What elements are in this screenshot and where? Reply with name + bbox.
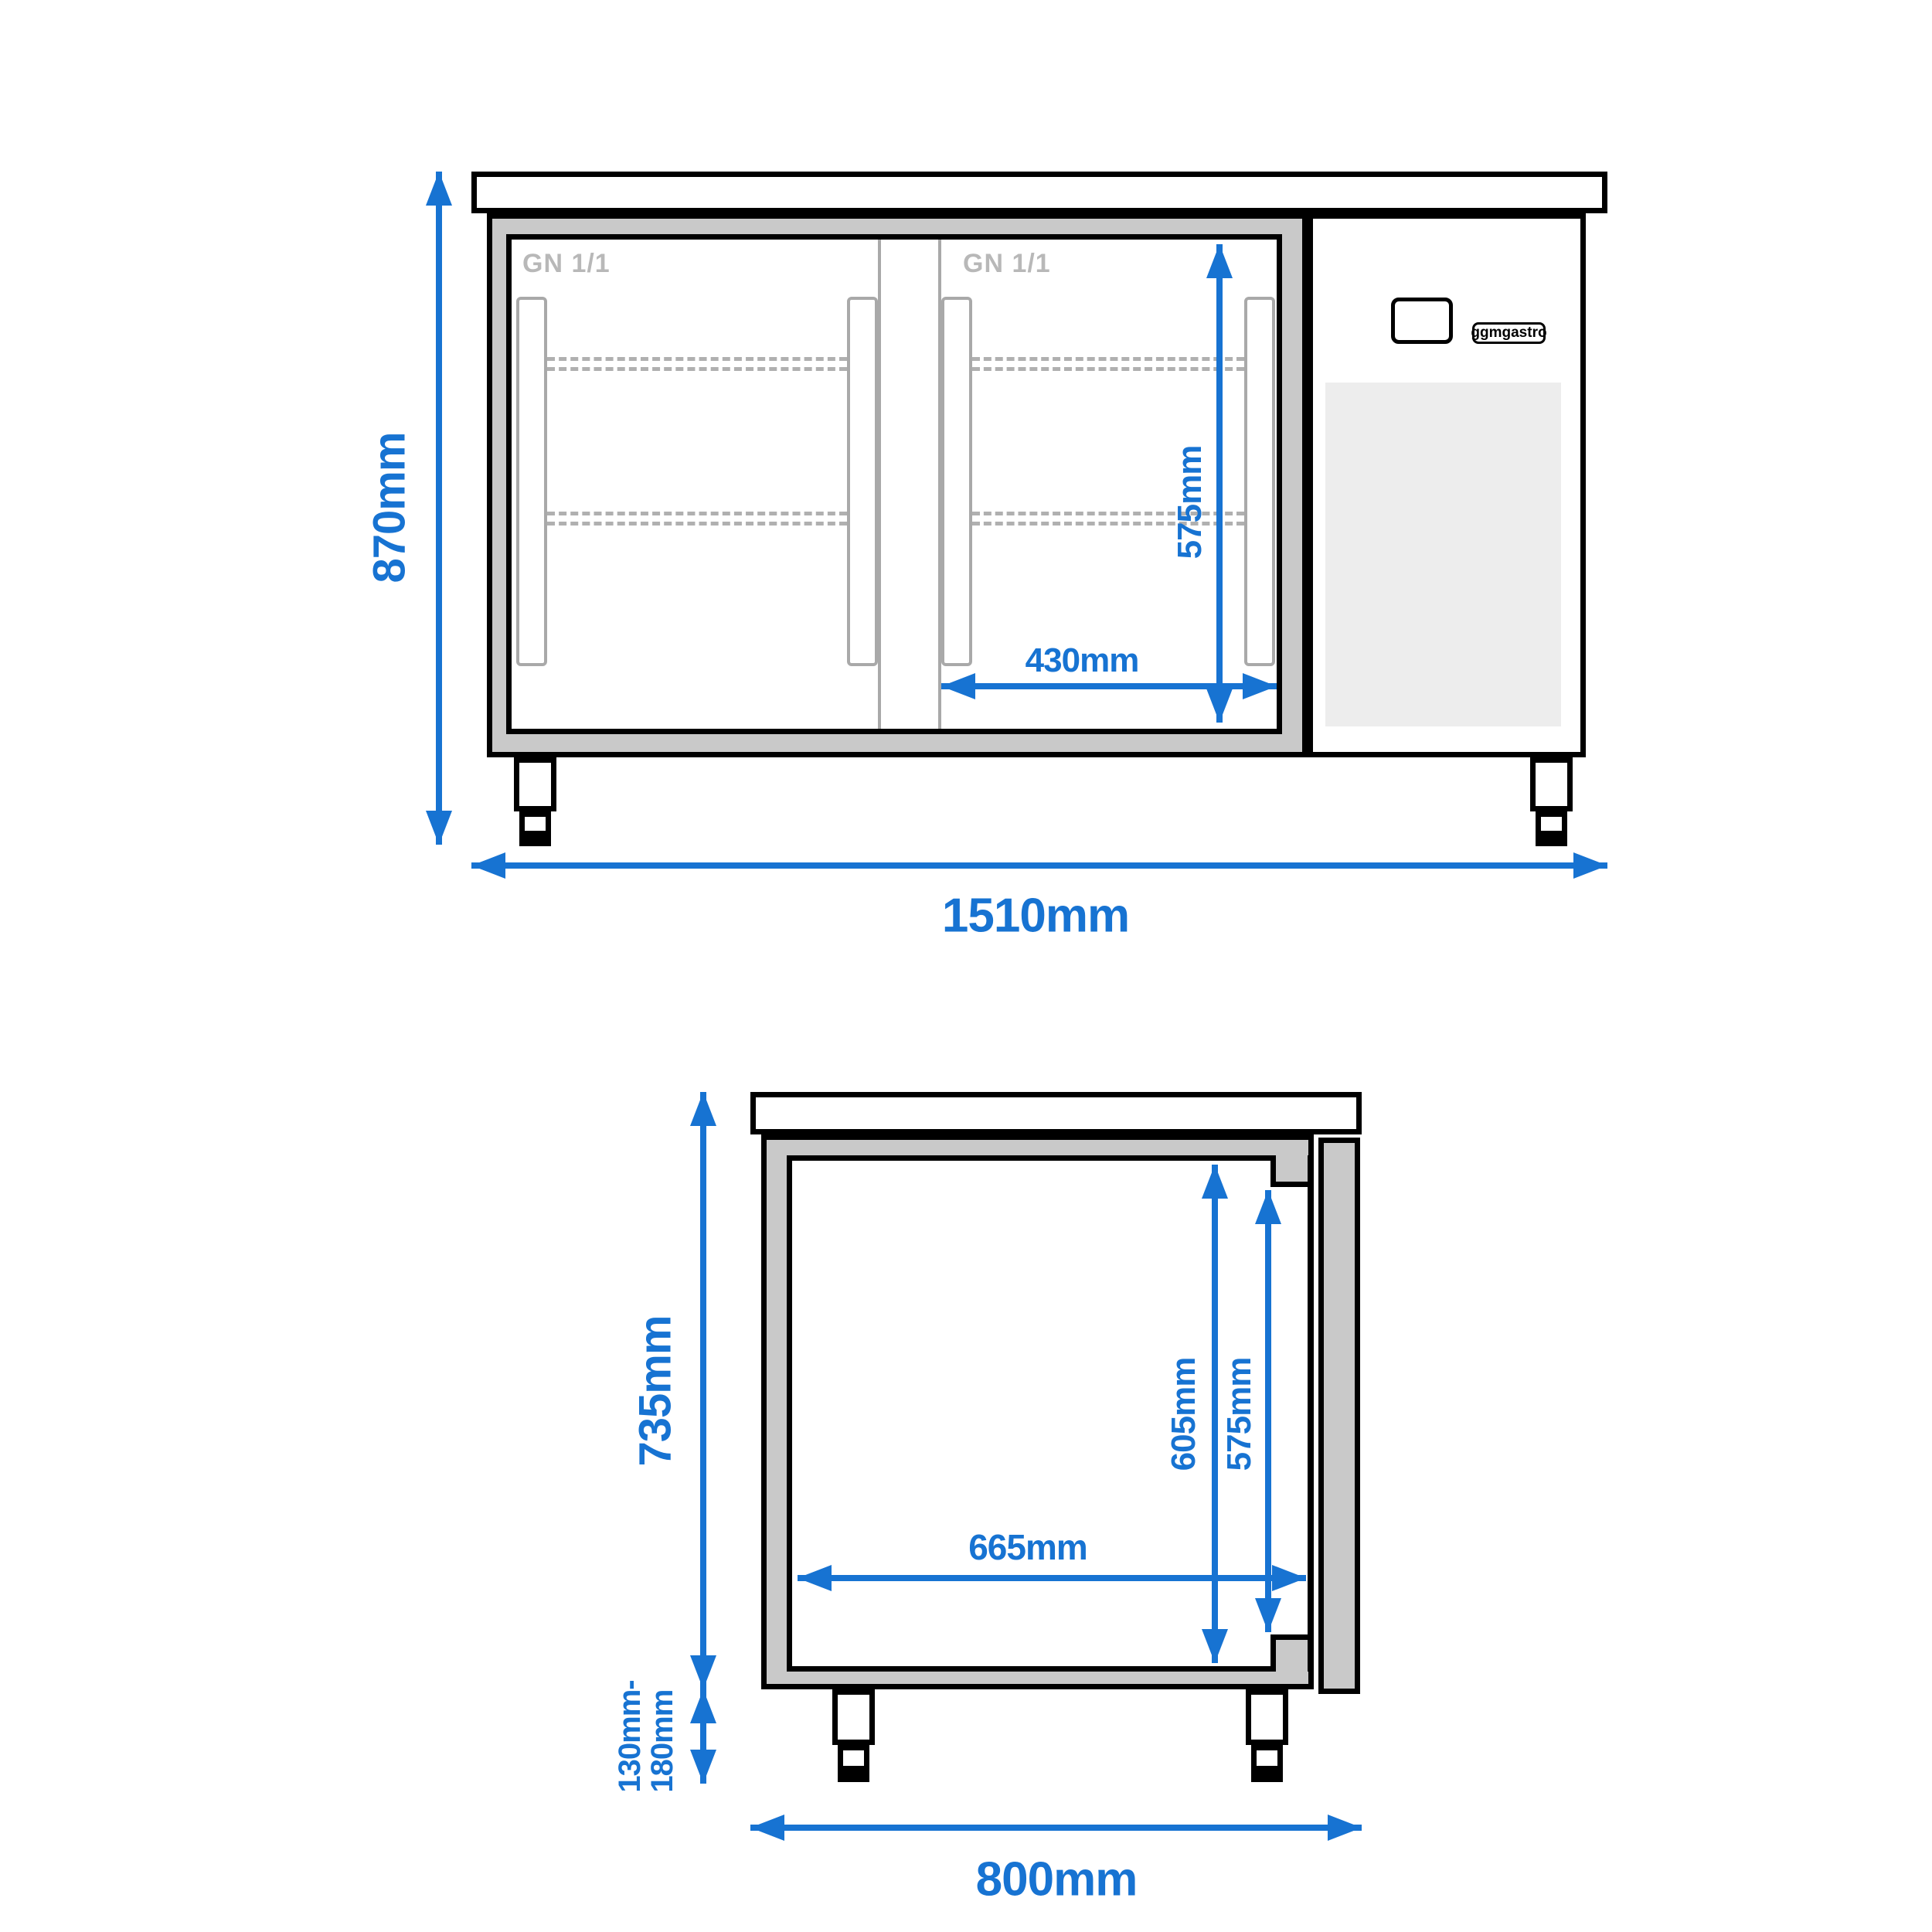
dim-door-inner-height-label: 575mm [1171, 446, 1209, 560]
dim-door-inner-width-label: 430mm [1026, 641, 1139, 680]
dim-door-inner-width-line [941, 683, 1277, 689]
dim-inner-height-label: 605mm [1165, 1358, 1203, 1471]
gn-label-right: GN 1/1 [963, 249, 1051, 279]
shelf-dashed-line [547, 367, 847, 371]
dim-width-label: 1510mm [942, 889, 1129, 944]
dim-width-arrowhead-right [1573, 852, 1607, 879]
dim-height-line [436, 172, 442, 845]
dim-door-inner-width-arrowhead-left [941, 673, 975, 699]
brand-badge-text: ggmgastro [1471, 325, 1546, 342]
dim-door-inner-height-arrowhead-bottom [1206, 689, 1233, 723]
shelf-dashed-line [547, 522, 847, 526]
dim-depth-arrowhead-right [1328, 1815, 1362, 1841]
adjustable-foot [1246, 1689, 1288, 1745]
door-rail [1244, 297, 1275, 666]
adjustable-foot-tip [838, 1771, 869, 1782]
dim-side-door-inner-height-arrowhead-bottom [1255, 1598, 1281, 1632]
dim-side-height-arrowhead-top [690, 1092, 716, 1126]
cavity-notch-top [1270, 1155, 1308, 1187]
dim-width-line [471, 862, 1607, 869]
shelf-dashed-line [547, 512, 847, 515]
dim-height-arrowhead-bottom [426, 811, 452, 845]
dim-door-inner-width-arrowhead-right [1243, 673, 1277, 699]
front-worktop [471, 172, 1607, 213]
side-door-panel [1318, 1138, 1360, 1694]
side-view: 735mm 130mm- 180mm 665mm 605mm 575mm 800… [0, 1043, 1932, 1932]
dim-door-inner-height-arrowhead-top [1206, 244, 1233, 278]
dim-inner-depth-label: 665mm [968, 1526, 1087, 1568]
shelf-dashed-line [972, 357, 1244, 361]
brand-badge: ggmgastro [1472, 322, 1546, 344]
adjustable-foot [1530, 757, 1573, 811]
dim-inner-depth-arrowhead-left [798, 1565, 832, 1591]
dim-inner-height-arrowhead-top [1202, 1165, 1228, 1199]
adjustable-foot [832, 1689, 875, 1745]
dim-side-height-label: 735mm [630, 1316, 682, 1467]
adjustable-foot-lower [519, 811, 551, 836]
dim-side-door-inner-height-line [1265, 1190, 1271, 1632]
door-rail [941, 297, 972, 666]
temperature-display [1391, 298, 1453, 344]
adjustable-foot-tip [1536, 836, 1567, 846]
dim-side-door-inner-height-label: 575mm [1220, 1358, 1259, 1471]
dim-inner-depth-arrowhead-right [1272, 1565, 1306, 1591]
dim-side-height-arrowhead-bottom [690, 1655, 716, 1689]
adjustable-foot-tip [1251, 1771, 1283, 1782]
adjustable-foot-lower [1536, 811, 1567, 836]
dim-depth-line [750, 1825, 1362, 1831]
side-worktop [750, 1092, 1362, 1134]
dim-height-arrowhead-top [426, 172, 452, 206]
door-rail [516, 297, 547, 666]
adjustable-foot-tip [519, 836, 551, 846]
front-view: GN 1/1 GN 1/1 ggmgastro 870mm 575mm 430m… [0, 0, 1932, 1043]
dim-leg-height-label: 130mm- 180mm [614, 1680, 679, 1792]
dim-door-inner-height-line [1216, 244, 1223, 723]
front-cooling-compartment [506, 234, 1282, 734]
shelf-dashed-line [972, 367, 1244, 371]
dim-height-label: 870mm [364, 433, 416, 583]
dim-width-arrowhead-left [471, 852, 505, 879]
dim-side-door-inner-height-arrowhead-top [1255, 1190, 1281, 1224]
dim-leg-height-arrowhead-bottom [690, 1750, 716, 1784]
dim-inner-height-arrowhead-bottom [1202, 1629, 1228, 1663]
adjustable-foot [514, 757, 556, 811]
adjustable-foot-lower [1251, 1745, 1283, 1771]
ventilation-panel [1325, 383, 1561, 726]
dim-inner-height-line [1212, 1165, 1218, 1663]
dim-leg-height-label-line2: 180mm [646, 1680, 679, 1792]
dim-leg-height-arrowhead-top [690, 1689, 716, 1723]
cavity-notch-bottom [1270, 1634, 1308, 1672]
shelf-dashed-line [547, 357, 847, 361]
dim-depth-label: 800mm [976, 1852, 1138, 1907]
dim-side-height-line [700, 1092, 706, 1689]
dim-leg-height-label-line1: 130mm- [614, 1680, 646, 1792]
door-rail [847, 297, 878, 666]
adjustable-foot-lower [838, 1745, 869, 1771]
gn-label-left: GN 1/1 [522, 249, 611, 279]
dim-depth-arrowhead-left [750, 1815, 784, 1841]
front-center-divider-left-line [878, 240, 881, 729]
dim-inner-depth-line [798, 1575, 1306, 1581]
